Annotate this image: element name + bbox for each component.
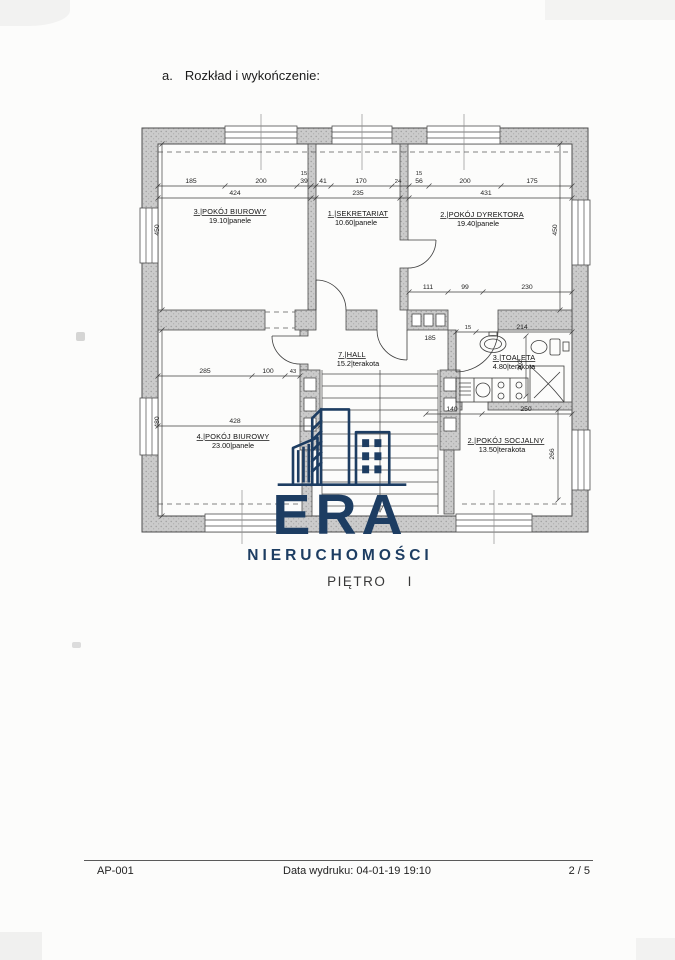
room-area: 19.10|panele bbox=[209, 216, 251, 225]
dim-label: 185 bbox=[185, 178, 197, 185]
footer-page-number: 2 / 5 bbox=[545, 865, 590, 877]
dim-label: 480 bbox=[154, 416, 161, 428]
kitchenette-icon bbox=[456, 378, 528, 402]
scan-artifact bbox=[0, 932, 42, 960]
dim-label: 424 bbox=[229, 190, 241, 197]
footer-doc-id: AP-001 bbox=[97, 865, 134, 877]
scan-artifact bbox=[76, 332, 85, 341]
room-area: 13.50|terakota bbox=[479, 445, 526, 454]
room-area: 15.2|terakota bbox=[337, 359, 380, 368]
section-index: a. bbox=[162, 68, 173, 83]
dim-label: 15 bbox=[301, 171, 307, 177]
room-area: 19.40|panele bbox=[457, 219, 499, 228]
footer-divider bbox=[84, 860, 593, 861]
dim-label: 100 bbox=[262, 368, 274, 375]
dim-label: 43 bbox=[290, 369, 296, 375]
dim-label: 214 bbox=[516, 324, 528, 331]
dim-label: 185 bbox=[424, 335, 436, 342]
scan-artifact bbox=[545, 0, 675, 20]
dim-label: 200 bbox=[459, 178, 471, 185]
era-logo-wordmark: ERA bbox=[252, 486, 428, 544]
dim-label: 175 bbox=[526, 178, 538, 185]
era-logo-buildings-icon bbox=[272, 390, 412, 491]
scan-artifact bbox=[0, 0, 70, 26]
room-label: 3.|TOALETA bbox=[493, 353, 536, 362]
dim-label: 450 bbox=[552, 224, 559, 236]
dim-label: 266 bbox=[549, 448, 556, 460]
shower-icon bbox=[530, 366, 564, 402]
door-arcs bbox=[272, 240, 498, 372]
dim-label: 428 bbox=[229, 418, 241, 425]
era-logo-subtitle: NIERUCHOMOŚCI bbox=[235, 547, 445, 565]
room-label: 2.|POKÓJ DYREKTORA bbox=[440, 210, 524, 219]
dim-label: 285 bbox=[199, 368, 211, 375]
footer-print-date: Data wydruku: 04-01-19 19:10 bbox=[283, 865, 431, 877]
dim-label: 99 bbox=[461, 284, 469, 291]
room-area: 10.60|panele bbox=[335, 218, 377, 227]
room-label: 4.|POKÓJ BIUROWY bbox=[197, 432, 270, 441]
opening-lintel bbox=[265, 312, 295, 328]
dim-label: 200 bbox=[255, 178, 267, 185]
dim-label: 431 bbox=[480, 190, 492, 197]
section-title: Rozkład i wykończenie: bbox=[185, 68, 320, 83]
dim-label: 15 bbox=[465, 325, 471, 331]
dim-label: 250 bbox=[520, 406, 532, 413]
room-label: 2.|POKÓJ SOCJALNY bbox=[468, 436, 545, 445]
dim-label: 15 bbox=[416, 171, 422, 177]
scanned-page: a.Rozkład i wykończenie: bbox=[0, 0, 675, 960]
dim-label: 56 bbox=[415, 178, 423, 185]
scan-artifact bbox=[636, 938, 675, 960]
toilet-icon bbox=[531, 339, 569, 355]
dim-label: 24 bbox=[395, 179, 402, 185]
room-area: 23.00|panele bbox=[212, 441, 254, 450]
dim-label: 170 bbox=[355, 178, 367, 185]
dim-label: 230 bbox=[521, 284, 533, 291]
room-label: 1.|SEKRETARIAT bbox=[328, 209, 389, 218]
dim-label: 39 bbox=[300, 178, 308, 185]
dim-label: 235 bbox=[352, 190, 364, 197]
dim-label: 41 bbox=[319, 178, 327, 185]
dim-label: 111 bbox=[423, 284, 434, 291]
room-area: 4.80|terakota bbox=[493, 362, 536, 371]
dim-label: 140 bbox=[446, 406, 458, 413]
room-label: 7.|HALL bbox=[338, 350, 366, 359]
dim-label: 450 bbox=[154, 224, 161, 236]
section-heading: a.Rozkład i wykończenie: bbox=[162, 68, 320, 83]
floor-caption: PIĘTRO I bbox=[300, 574, 440, 589]
room-label: 3.|POKÓJ BIUROWY bbox=[194, 207, 267, 216]
scan-artifact bbox=[72, 642, 81, 648]
